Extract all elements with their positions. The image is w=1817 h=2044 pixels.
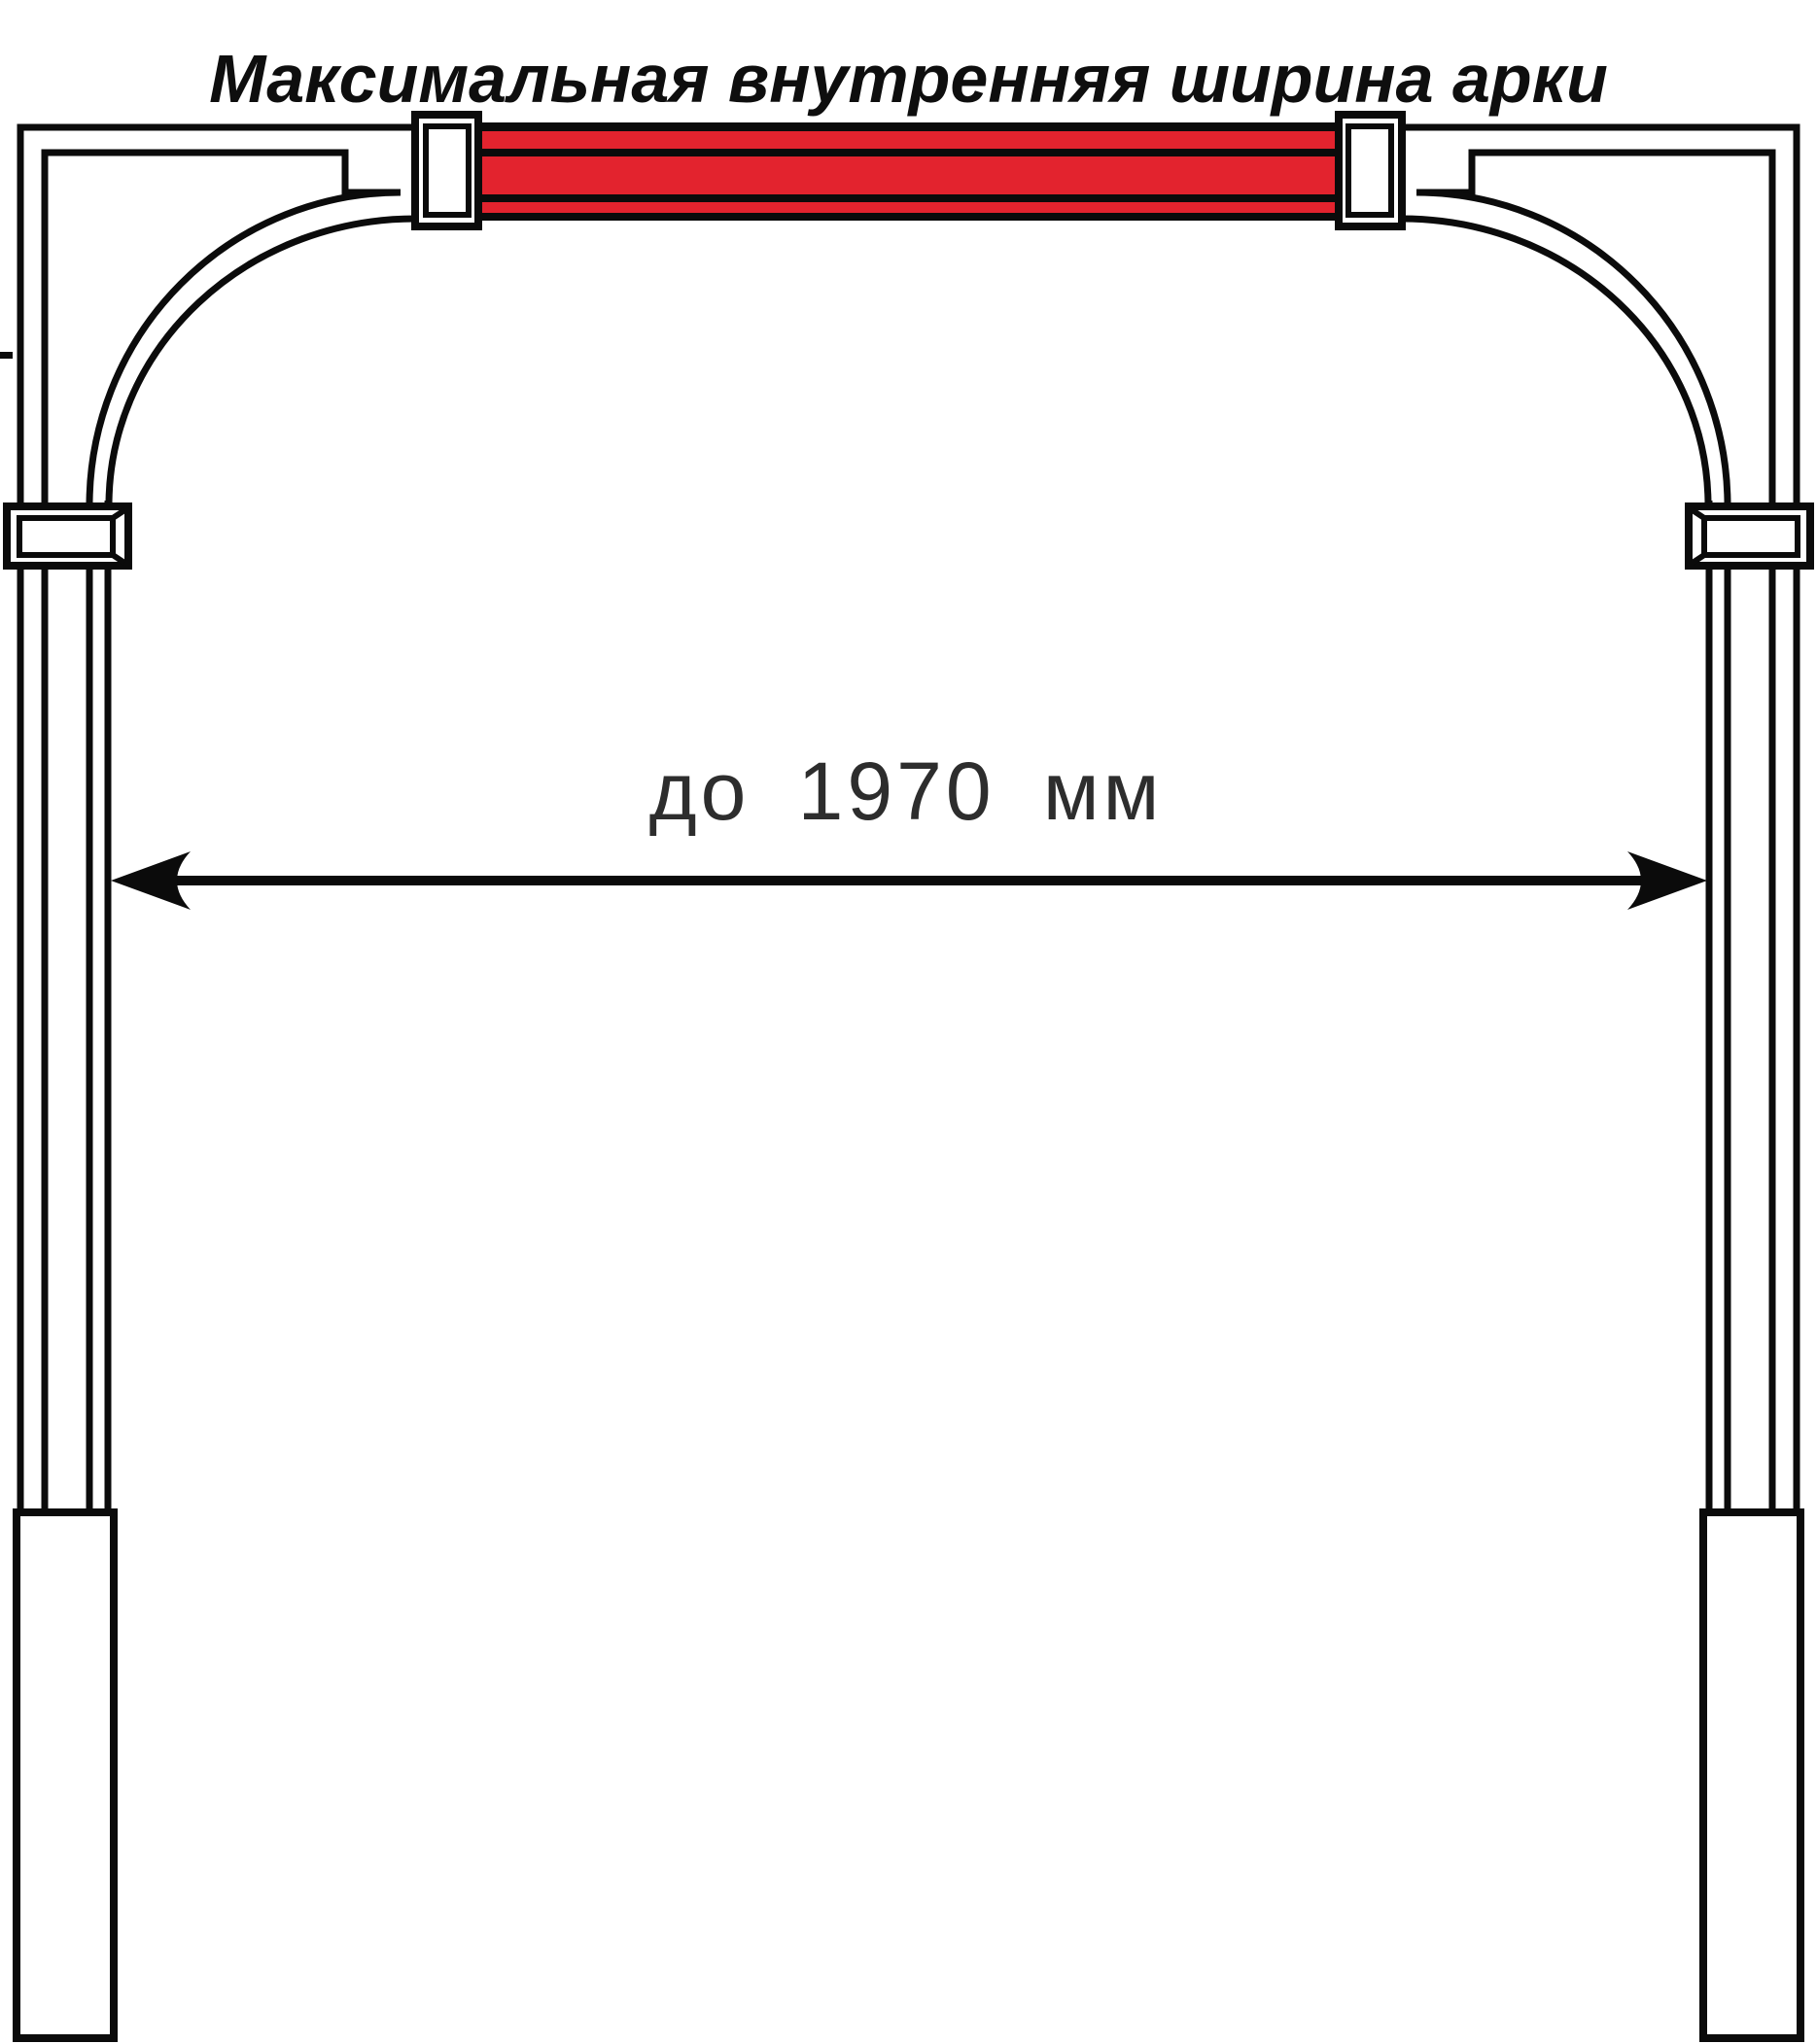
top-panel-border-top <box>474 122 1343 131</box>
top-panel-highlighted <box>474 122 1343 221</box>
arc-right-inner <box>1402 219 1708 505</box>
arc-left-outer <box>89 192 401 505</box>
arc-right-outer <box>1416 192 1728 505</box>
base-right <box>1703 1512 1800 2038</box>
arc-left-inner <box>109 219 415 505</box>
top-panel-stripe-line-2 <box>474 194 1343 202</box>
top-panel-border-bottom <box>474 213 1343 221</box>
inner-frame-right <box>1416 153 1772 1512</box>
outer-frame-right <box>1399 127 1797 1512</box>
top-panel-red-fill <box>474 122 1343 221</box>
base-left <box>17 1512 114 2038</box>
dimension: до 1970 мм <box>111 745 1707 910</box>
inner-frame-left <box>45 153 401 1512</box>
column-bases <box>17 1512 1800 2038</box>
top-panel-stripe-line-1 <box>474 149 1343 156</box>
stray-tick <box>0 352 13 359</box>
arch-diagram: до 1970 мм <box>0 0 1817 2044</box>
outer-frame-left <box>20 127 418 1512</box>
dimension-label: до 1970 мм <box>649 745 1164 837</box>
arch-width-figure: Максимальная внутренняя ширина арки <box>0 0 1817 2044</box>
